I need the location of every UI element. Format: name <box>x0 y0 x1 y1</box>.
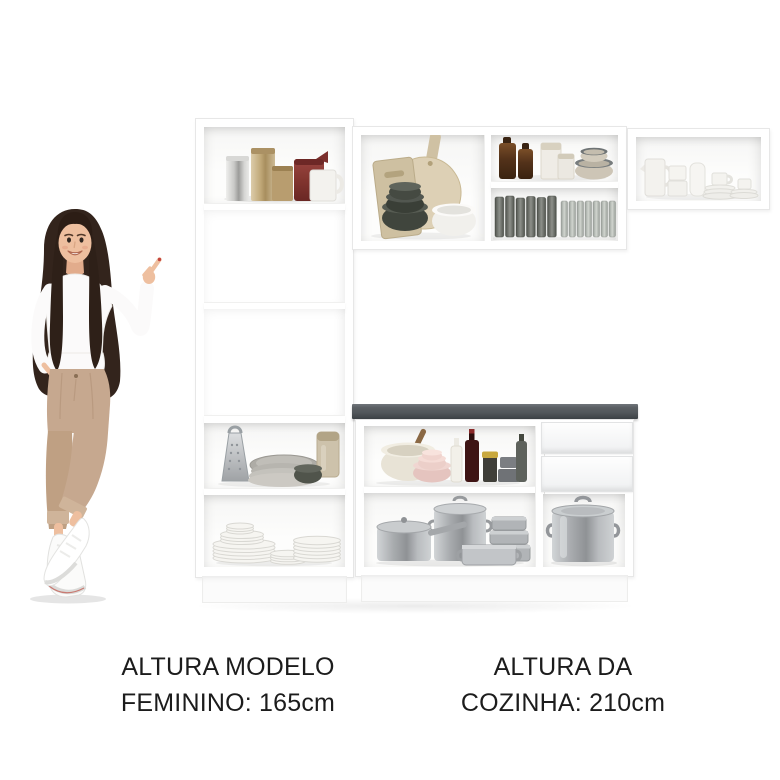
white-plate-stacks <box>204 495 345 567</box>
stockpot-cell <box>543 494 625 567</box>
model-pointing-hand <box>143 258 161 284</box>
china-cell <box>636 137 761 201</box>
model-trousers <box>46 369 110 529</box>
caption-kitchen-line1: ALTURA DA <box>418 649 708 685</box>
open-niche-lower <box>204 309 345 415</box>
wall-cabinet-right <box>627 128 770 210</box>
white-china-set <box>636 137 761 201</box>
tall-bottom-shelf <box>204 495 345 567</box>
caption-model-line1: ALTURA MODELO <box>58 649 398 685</box>
drawer-lower <box>541 456 633 492</box>
glasses-rows <box>491 188 618 241</box>
pots-and-pans <box>364 493 535 567</box>
tall-top-compartment <box>204 127 345 203</box>
bowls-and-bottles <box>364 426 535 486</box>
bottles-cell <box>491 135 618 181</box>
countertop <box>352 404 638 419</box>
bottles-and-beige-bowls <box>491 135 618 181</box>
pots-shelf-cell <box>364 493 535 567</box>
grater-and-platters <box>204 423 345 488</box>
stockpot <box>543 494 625 567</box>
female-model <box>8 205 178 605</box>
base-cabinet-plinth <box>361 575 628 602</box>
caption-kitchen-height: ALTURA DA COZINHA: 210cm <box>418 649 708 721</box>
drawer-upper <box>541 422 633 454</box>
boards-cell <box>361 135 484 241</box>
model-sneakers <box>44 518 89 597</box>
glasses-cell <box>491 188 618 241</box>
tall-cabinet-plinth <box>202 576 347 603</box>
tall-middle-shelf <box>204 423 345 488</box>
open-niche-upper <box>204 210 345 302</box>
caption-model-line2: FEMININO: 165cm <box>58 685 398 721</box>
wall-cabinet-middle <box>352 126 627 250</box>
canister-set <box>204 129 345 203</box>
product-image: ALTURA MODELO FEMININO: 165cm ALTURA DA … <box>0 0 780 780</box>
prep-shelf-cell <box>364 426 535 486</box>
cutting-boards-and-bowls <box>361 135 484 241</box>
caption-kitchen-line2: COZINHA: 210cm <box>418 685 708 721</box>
model-face <box>58 212 93 263</box>
tall-cabinet <box>195 118 354 578</box>
caption-model-height: ALTURA MODELO FEMININO: 165cm <box>58 649 398 721</box>
base-cabinet <box>355 419 634 577</box>
